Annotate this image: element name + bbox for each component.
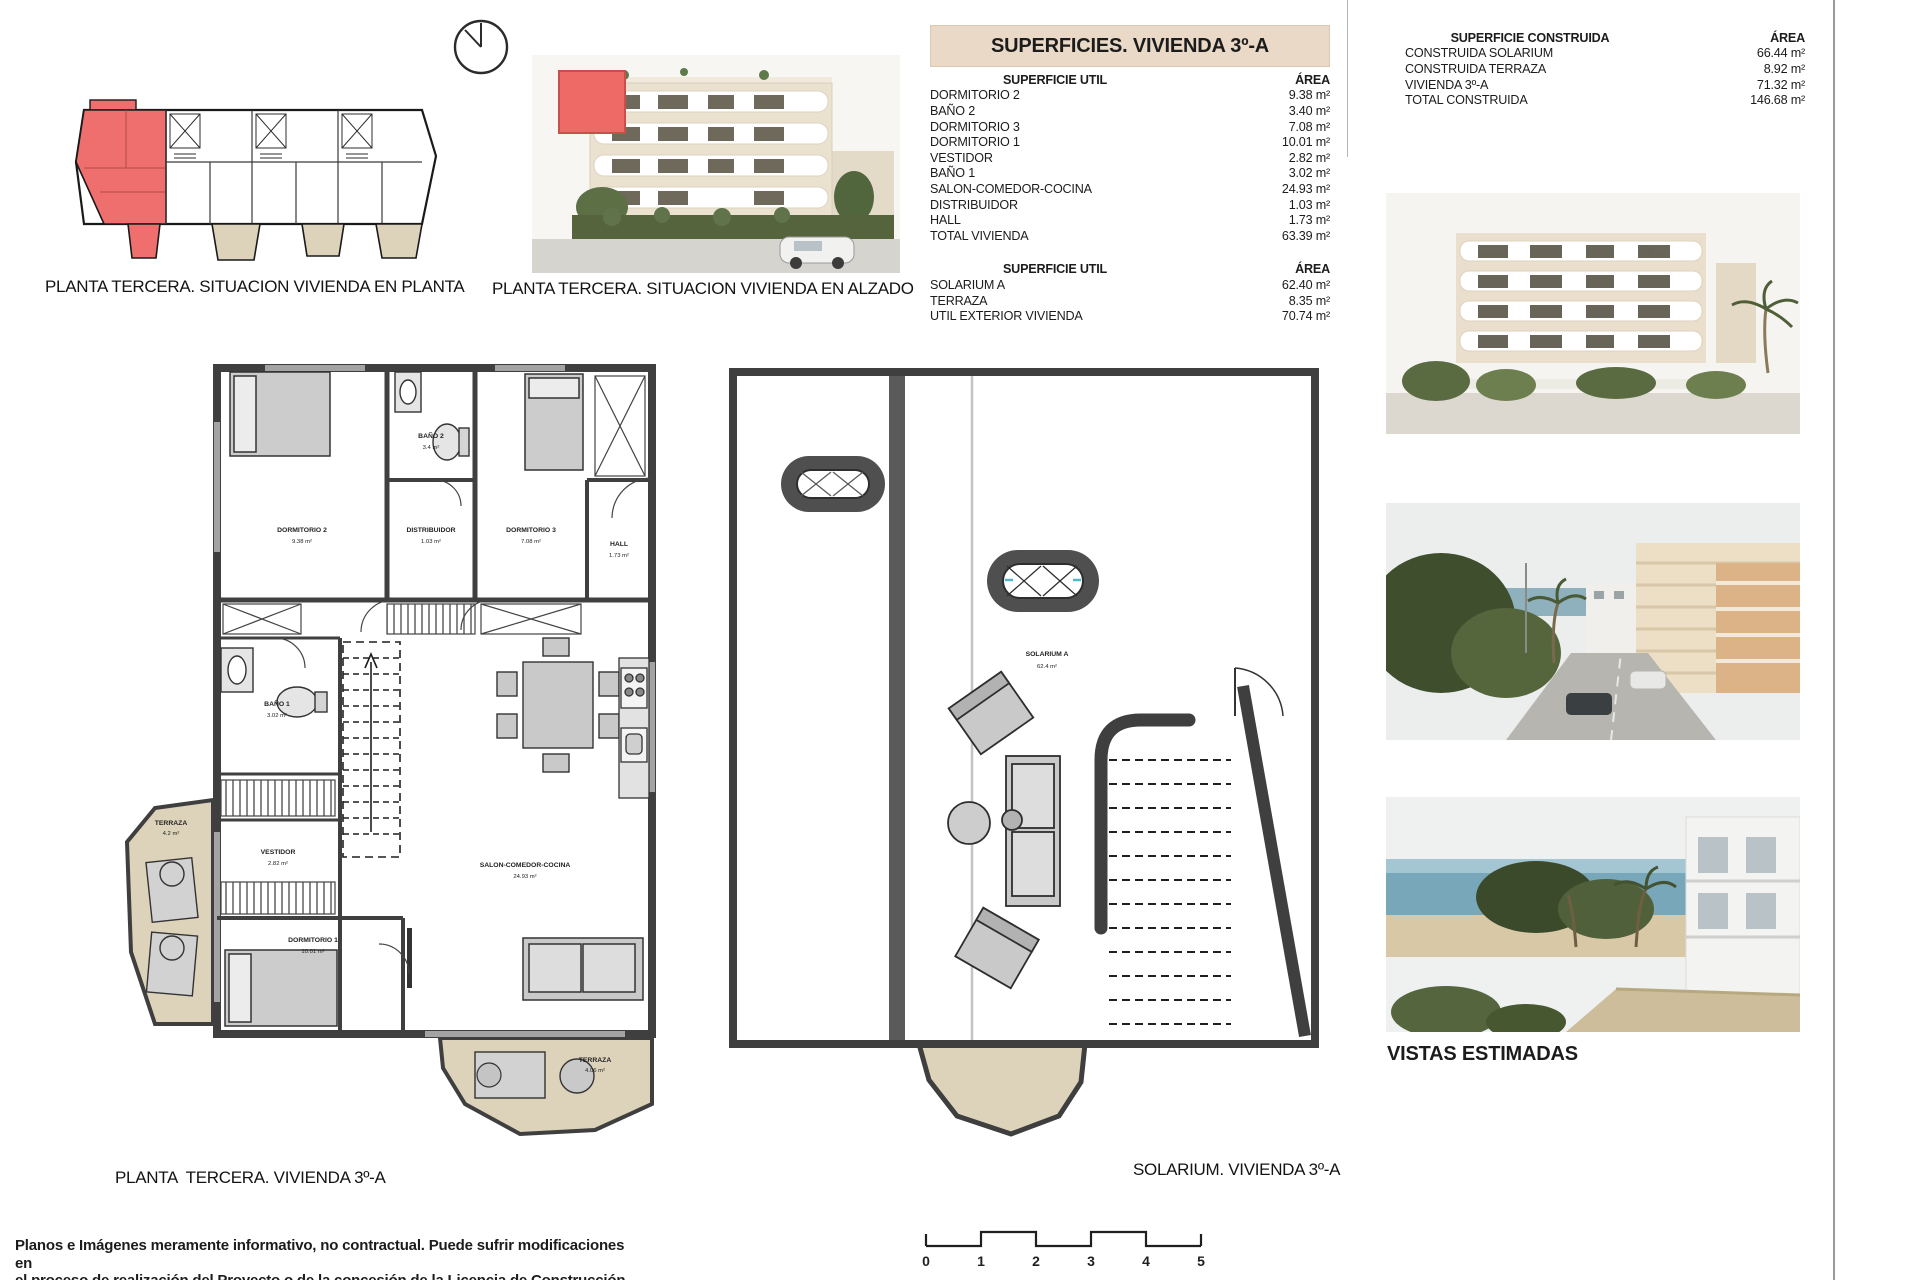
disclaimer: Planos e Imágenes meramente informativo,… xyxy=(15,1237,635,1280)
surfaces-util-header: SUPERFICIE UTIL ÁREA xyxy=(930,72,1330,88)
table-row: VESTIDOR2.82 m² xyxy=(930,150,1330,166)
svg-text:BAÑO 1: BAÑO 1 xyxy=(264,699,290,708)
svg-text:DISTRIBUIDOR: DISTRIBUIDOR xyxy=(406,527,455,534)
table-row: SOLARIUM A62.40 m² xyxy=(930,277,1330,293)
surfaces-table: SUPERFICIES. VIVIENDA 3º-A SUPERFICIE UT… xyxy=(930,25,1330,324)
svg-text:7.08 m²: 7.08 m² xyxy=(521,539,541,545)
built-surface-table: SUPERFICIE CONSTRUIDA ÁREA CONSTRUIDA SO… xyxy=(1405,30,1805,108)
north-indicator-icon xyxy=(450,16,512,78)
solarium-terrace xyxy=(919,1044,1085,1134)
highlighted-unit-top xyxy=(90,100,136,110)
table-row: DORMITORIO 37.08 m² xyxy=(930,119,1330,135)
svg-text:4: 4 xyxy=(1142,1253,1150,1269)
photo-beach-view xyxy=(1386,797,1800,1032)
svg-text:VESTIDOR: VESTIDOR xyxy=(261,849,296,856)
svg-text:1: 1 xyxy=(977,1253,985,1269)
svg-text:DORMITORIO 2: DORMITORIO 2 xyxy=(277,527,327,534)
solarium-caption: SOLARIUM. VIVIENDA 3º-A xyxy=(1133,1160,1340,1180)
jacuzzi-right xyxy=(987,550,1099,612)
table-row: HALL1.73 m² xyxy=(930,212,1330,228)
svg-text:4.2 m²: 4.2 m² xyxy=(163,831,180,837)
table-row: DISTRIBUIDOR1.03 m² xyxy=(930,197,1330,213)
svg-text:2.82 m²: 2.82 m² xyxy=(268,861,288,867)
svg-text:3.4 m²: 3.4 m² xyxy=(423,445,440,451)
built-table-header: SUPERFICIE CONSTRUIDA ÁREA xyxy=(1405,30,1805,46)
table-row: DORMITORIO 29.38 m² xyxy=(930,88,1330,104)
table-row: CONSTRUIDA TERRAZA8.92 m² xyxy=(1405,61,1805,77)
svg-text:3: 3 xyxy=(1087,1253,1095,1269)
sofa xyxy=(523,938,643,1000)
terrace-bottom: TERRAZA 4.06 m² xyxy=(440,1038,652,1134)
svg-text:1.03 m²: 1.03 m² xyxy=(421,539,441,545)
sheet-right-border xyxy=(1833,0,1835,1280)
kitchen xyxy=(619,658,649,798)
svg-text:SALON-COMEDOR-COCINA: SALON-COMEDOR-COCINA xyxy=(480,862,571,869)
highlighted-balcony xyxy=(128,224,160,258)
disclaimer-line-1: Planos e Imágenes meramente informativo,… xyxy=(15,1237,635,1272)
svg-text:3.02 m²: 3.02 m² xyxy=(267,713,287,719)
photo-building-render xyxy=(1386,193,1800,434)
surfaces-table-title: SUPERFICIES. VIVIENDA 3º-A xyxy=(930,25,1330,67)
table-row: TERRAZA8.35 m² xyxy=(930,293,1330,309)
svg-text:24.93 m²: 24.93 m² xyxy=(513,874,536,880)
divider-line-top xyxy=(1347,0,1348,157)
party-wall xyxy=(889,376,905,1040)
views-caption: VISTAS ESTIMADAS xyxy=(1387,1043,1578,1066)
table-row: BAÑO 13.02 m² xyxy=(930,166,1330,182)
table-row: VIVIENDA 3º-A71.32 m² xyxy=(1405,77,1805,93)
table-row: SALON-COMEDOR-COCINA24.93 m² xyxy=(930,181,1330,197)
tv xyxy=(407,928,412,988)
elevation-unit-highlight xyxy=(559,71,625,133)
svg-text:4.06 m²: 4.06 m² xyxy=(585,1068,605,1074)
table-row: TOTAL VIVIENDA63.39 m² xyxy=(930,228,1330,244)
svg-text:10.01 m²: 10.01 m² xyxy=(301,949,324,955)
situation-floor-overview xyxy=(70,98,442,266)
table-row: CONSTRUIDA SOLARIUM66.44 m² xyxy=(1405,46,1805,62)
svg-text:BAÑO 2: BAÑO 2 xyxy=(418,431,444,440)
overview-caption: PLANTA TERCERA. SITUACION VIVIENDA EN PL… xyxy=(45,277,464,297)
scale-bar: 0 1 2 3 4 5 xyxy=(920,1222,1220,1277)
table-row: TOTAL CONSTRUIDA146.68 m² xyxy=(1405,92,1805,108)
plan-sheet: PLANTA TERCERA. SITUACION VIVIENDA EN PL… xyxy=(0,0,1920,1280)
surfaces-exterior-header: SUPERFICIE UTIL ÁREA xyxy=(930,262,1330,278)
floor-plan-caption: PLANTA TERCERA. VIVIENDA 3º-A xyxy=(115,1168,386,1188)
jacuzzi-left xyxy=(781,456,885,512)
svg-text:5: 5 xyxy=(1197,1253,1205,1269)
table-row: DORMITORIO 110.01 m² xyxy=(930,134,1330,150)
svg-text:62.4 m²: 62.4 m² xyxy=(1037,664,1057,670)
disclaimer-line-2: el proceso de realización del Proyecto o… xyxy=(15,1272,635,1280)
svg-text:TERRAZA: TERRAZA xyxy=(155,820,188,827)
svg-text:SOLARIUM A: SOLARIUM A xyxy=(1026,651,1069,658)
table-row: BAÑO 23.40 m² xyxy=(930,103,1330,119)
svg-text:TERRAZA: TERRAZA xyxy=(579,1057,612,1064)
elevation-caption: PLANTA TERCERA. SITUACION VIVIENDA EN AL… xyxy=(492,279,914,299)
svg-text:1.73 m²: 1.73 m² xyxy=(609,553,629,559)
svg-text:DORMITORIO 1: DORMITORIO 1 xyxy=(288,937,338,944)
svg-text:9.38 m²: 9.38 m² xyxy=(292,539,312,545)
svg-text:HALL: HALL xyxy=(610,541,628,548)
solarium-plan: SOLARIUM A 62.4 m² xyxy=(729,368,1319,1140)
situation-elevation-render xyxy=(532,55,900,273)
svg-text:DORMITORIO 3: DORMITORIO 3 xyxy=(506,527,556,534)
floor-plan: TERRAZA 4.2 m² TERRAZA 4.06 m² xyxy=(125,362,665,1142)
terrace-left: TERRAZA 4.2 m² xyxy=(127,800,213,1024)
table-row: UTIL EXTERIOR VIVIENDA70.74 m² xyxy=(930,308,1330,324)
photo-street-sea-view xyxy=(1386,503,1800,740)
svg-text:2: 2 xyxy=(1032,1253,1040,1269)
svg-text:0: 0 xyxy=(922,1253,930,1269)
